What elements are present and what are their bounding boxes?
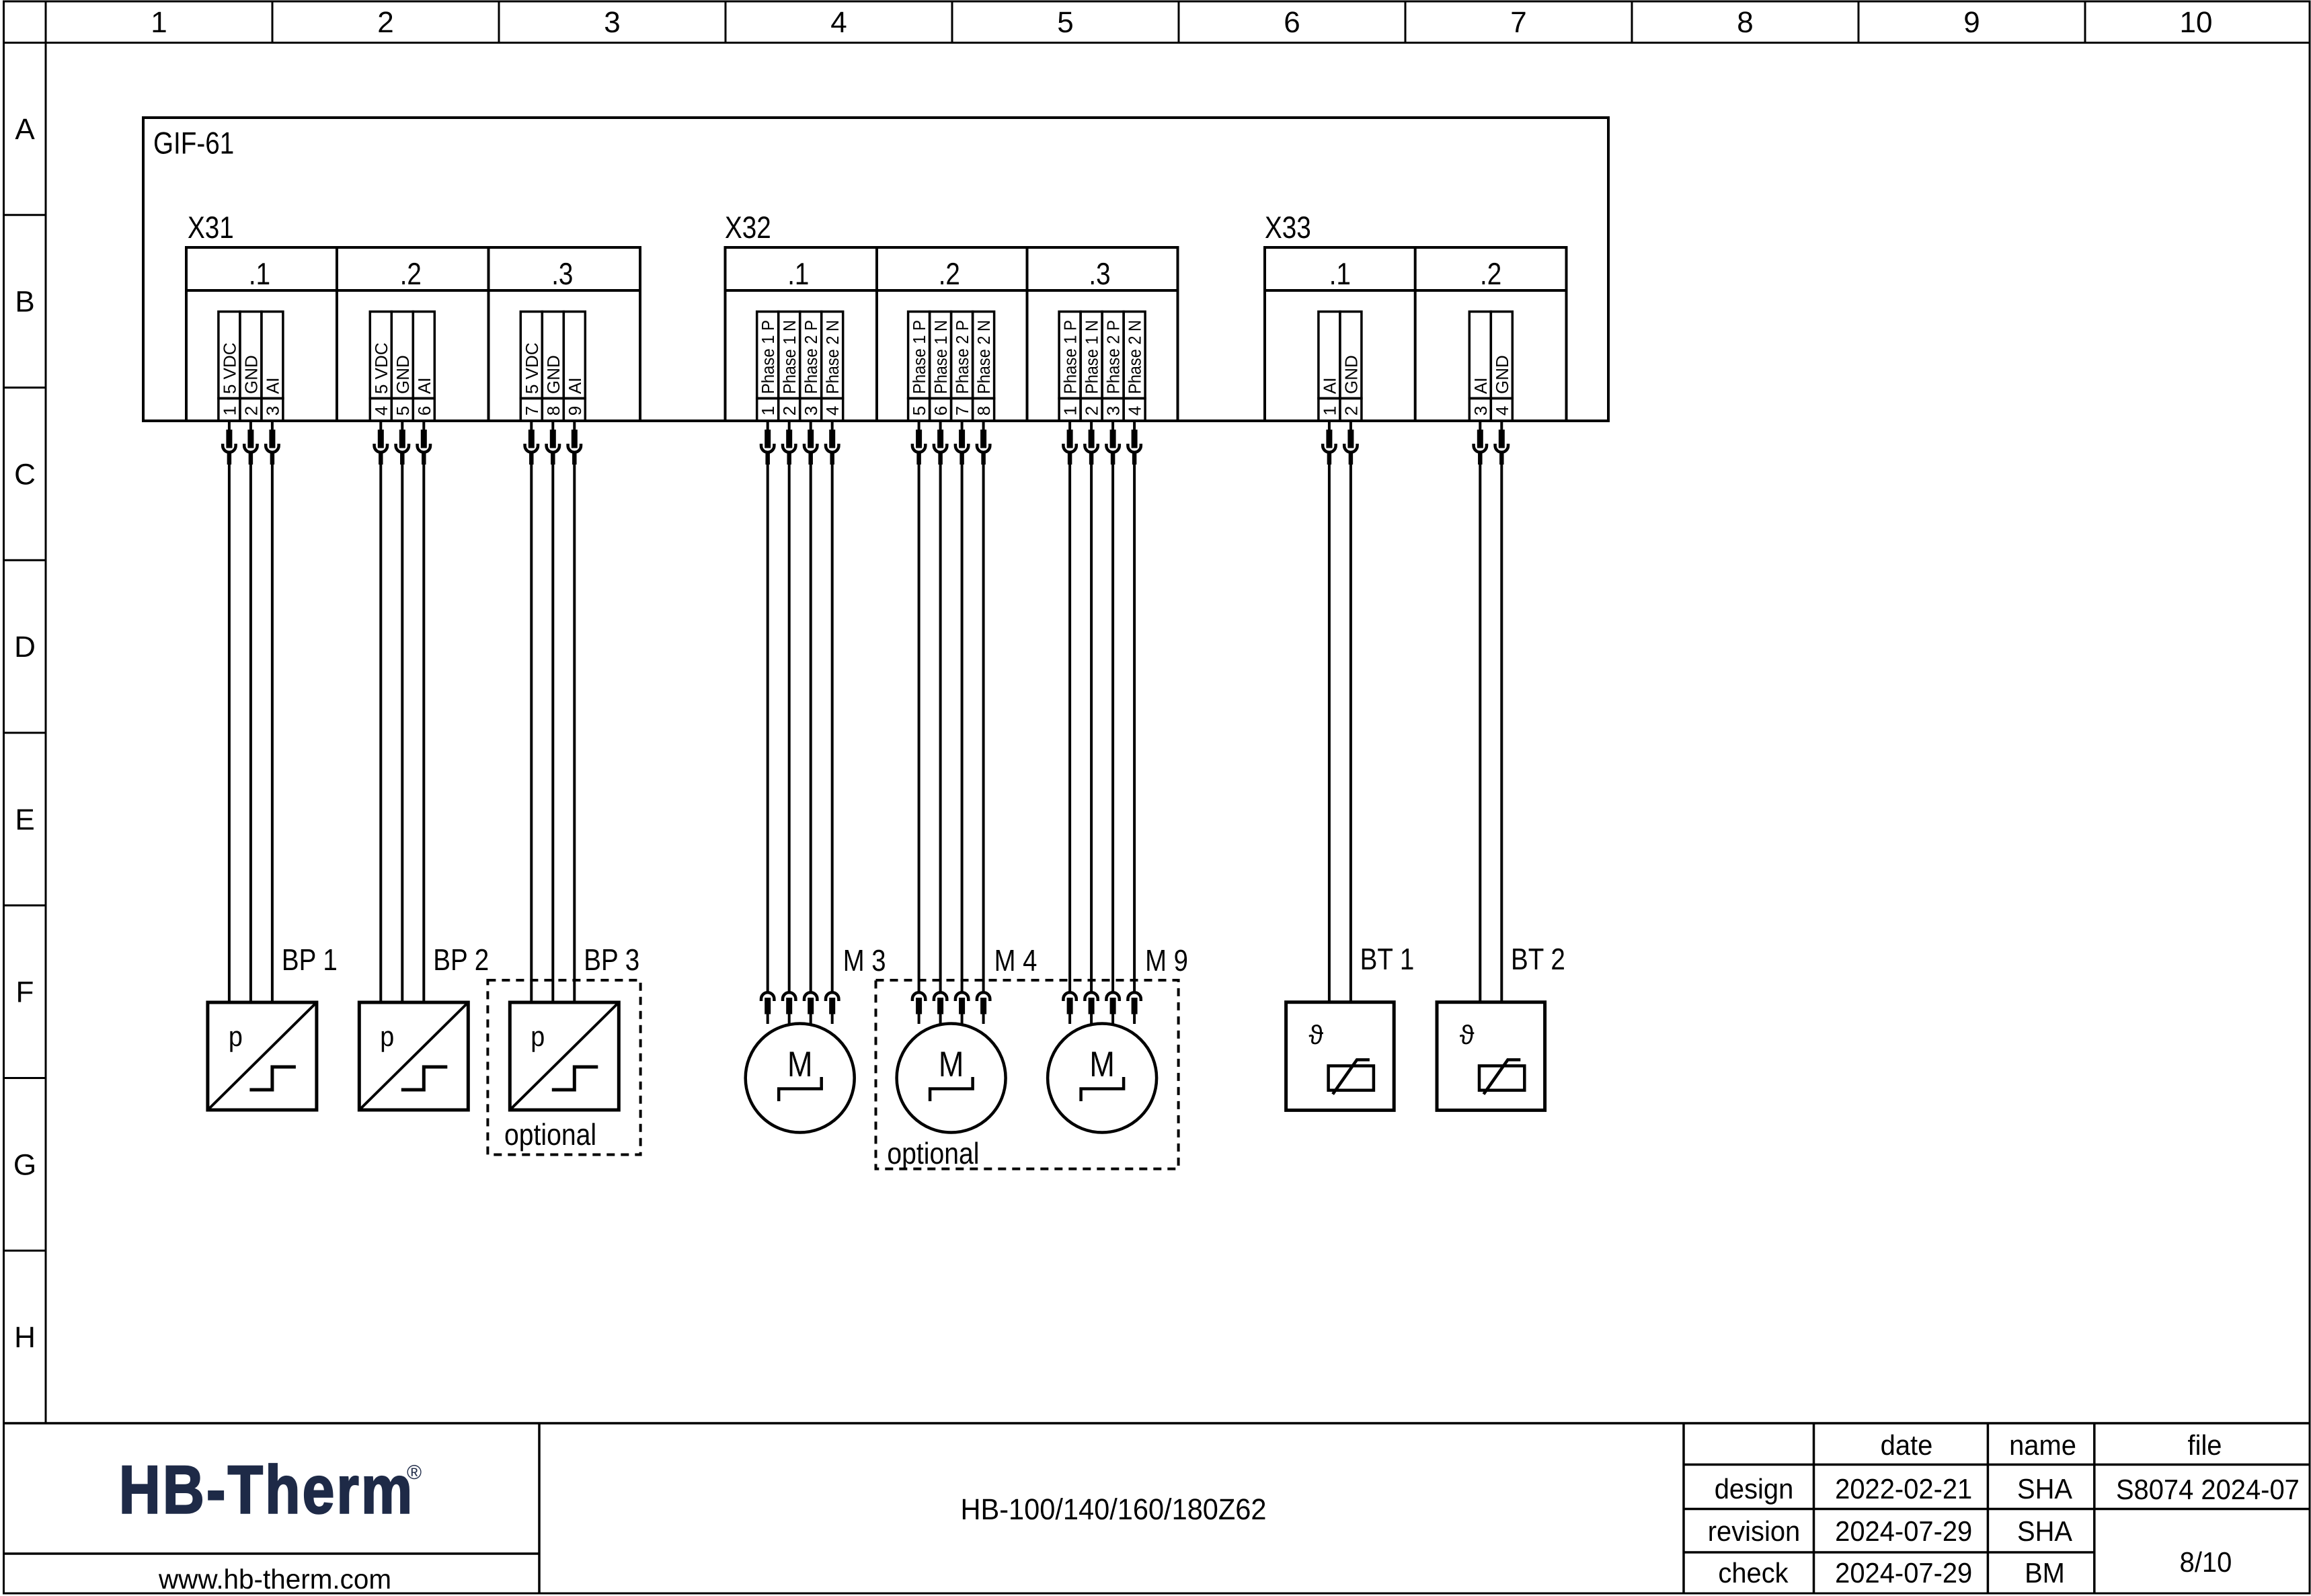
svg-text:p: p [229, 1021, 243, 1052]
svg-text:X31: X31 [188, 210, 234, 245]
svg-text:M 4: M 4 [994, 943, 1037, 977]
svg-text:AI: AI [1319, 377, 1339, 394]
svg-text:4: 4 [371, 406, 391, 415]
svg-text:SHA: SHA [2017, 1515, 2072, 1547]
svg-text:5: 5 [909, 406, 929, 415]
svg-text:Phase 1 P: Phase 1 P [1060, 320, 1081, 394]
svg-text:1: 1 [151, 6, 167, 39]
svg-text:M 9: M 9 [1145, 943, 1188, 977]
svg-text:GND: GND [393, 355, 413, 394]
svg-text:Phase 2 P: Phase 2 P [801, 320, 821, 394]
svg-text:2: 2 [241, 406, 261, 415]
svg-text:date: date [1881, 1429, 1933, 1461]
svg-text:F: F [16, 976, 34, 1009]
svg-text:B: B [15, 286, 34, 319]
svg-text:1: 1 [1060, 406, 1081, 415]
svg-text:Phase 2 N: Phase 2 N [822, 320, 843, 394]
svg-text:M: M [939, 1045, 964, 1084]
svg-text:6: 6 [1284, 6, 1300, 39]
svg-text:7: 7 [1510, 6, 1526, 39]
svg-text:10: 10 [2180, 6, 2213, 39]
svg-text:p: p [531, 1021, 545, 1052]
svg-text:optional: optional [887, 1136, 979, 1170]
svg-text:GND: GND [1341, 355, 1361, 394]
svg-text:BP 3: BP 3 [584, 943, 639, 977]
svg-text:7: 7 [522, 406, 542, 415]
svg-text:.1: .1 [1329, 256, 1351, 291]
svg-text:9: 9 [1963, 6, 1980, 39]
svg-text:AI: AI [565, 377, 585, 394]
svg-text:4: 4 [1492, 406, 1512, 415]
svg-text:p: p [380, 1021, 394, 1052]
svg-text:Phase 1 N: Phase 1 N [931, 320, 951, 394]
svg-text:Phase 2 P: Phase 2 P [952, 320, 972, 394]
svg-text:optional: optional [504, 1117, 596, 1152]
svg-text:AI: AI [414, 377, 434, 394]
svg-text:4: 4 [830, 6, 847, 39]
svg-text:3: 3 [801, 406, 821, 415]
svg-text:Phase 1 P: Phase 1 P [909, 320, 929, 394]
svg-text:2: 2 [1082, 406, 1102, 415]
svg-text:M: M [1089, 1045, 1115, 1084]
svg-text:design: design [1715, 1473, 1794, 1505]
svg-text:.2: .2 [400, 256, 422, 291]
svg-text:BT 2: BT 2 [1511, 942, 1565, 976]
svg-text:ϑ: ϑ [1460, 1021, 1475, 1050]
svg-text:1: 1 [758, 406, 778, 415]
svg-text:X33: X33 [1265, 210, 1311, 245]
svg-text:5 VDC: 5 VDC [522, 342, 542, 394]
svg-text:H: H [14, 1321, 36, 1354]
svg-text:BM: BM [2025, 1557, 2065, 1589]
svg-text:2: 2 [377, 6, 393, 39]
svg-text:5: 5 [1057, 6, 1073, 39]
svg-text:3: 3 [1103, 406, 1124, 415]
svg-text:GND: GND [1492, 355, 1512, 394]
svg-text:name: name [2009, 1429, 2076, 1461]
svg-text:Phase 1 N: Phase 1 N [779, 320, 799, 394]
svg-text:1: 1 [1319, 406, 1339, 415]
svg-text:G: G [13, 1148, 36, 1181]
svg-text:2024-07-29: 2024-07-29 [1835, 1557, 1972, 1589]
svg-text:8: 8 [543, 406, 563, 415]
svg-text:X32: X32 [725, 210, 771, 245]
svg-text:7: 7 [952, 406, 972, 415]
svg-text:AI: AI [262, 377, 282, 394]
svg-text:BP 1: BP 1 [282, 943, 338, 977]
svg-text:2022-02-21: 2022-02-21 [1835, 1473, 1972, 1505]
svg-text:M 3: M 3 [843, 943, 886, 977]
svg-text:ϑ: ϑ [1308, 1021, 1323, 1050]
svg-text:.1: .1 [787, 256, 809, 291]
svg-text:HB-Therm: HB-Therm [119, 1453, 414, 1528]
svg-text:3: 3 [262, 406, 282, 415]
svg-text:GND: GND [543, 355, 563, 394]
svg-text:.3: .3 [1089, 256, 1110, 291]
svg-text:M: M [787, 1045, 813, 1084]
svg-text:8: 8 [1737, 6, 1753, 39]
svg-text:5 VDC: 5 VDC [371, 342, 391, 394]
svg-text:Phase 1 N: Phase 1 N [1082, 320, 1102, 394]
svg-text:.2: .2 [1480, 256, 1501, 291]
svg-text:1: 1 [219, 406, 239, 415]
svg-text:HB-100/140/160/180Z62: HB-100/140/160/180Z62 [961, 1493, 1267, 1526]
svg-text:2024-07-29: 2024-07-29 [1835, 1515, 1972, 1547]
svg-text:C: C [14, 458, 36, 491]
svg-text:3: 3 [1471, 406, 1491, 415]
svg-text:6: 6 [931, 406, 951, 415]
svg-text:D: D [14, 631, 36, 664]
svg-text:4: 4 [822, 406, 843, 415]
svg-text:BP 2: BP 2 [433, 943, 489, 977]
svg-text:.1: .1 [249, 256, 270, 291]
svg-text:Phase 2 N: Phase 2 N [1125, 320, 1145, 394]
svg-text:.2: .2 [939, 256, 960, 291]
svg-text:check: check [1718, 1557, 1789, 1589]
svg-text:GND: GND [241, 355, 261, 394]
svg-text:revision: revision [1708, 1515, 1801, 1547]
svg-text:6: 6 [414, 406, 434, 415]
svg-text:S8074 2024-07: S8074 2024-07 [2116, 1474, 2300, 1505]
svg-text:A: A [15, 113, 35, 146]
svg-text:E: E [15, 803, 34, 836]
svg-text:Phase 2 N: Phase 2 N [974, 320, 994, 394]
svg-text:®: ® [407, 1462, 422, 1484]
svg-text:3: 3 [604, 6, 620, 39]
svg-text:5 VDC: 5 VDC [219, 342, 239, 394]
svg-text:9: 9 [565, 406, 585, 415]
svg-text:www.hb-therm.com: www.hb-therm.com [158, 1564, 391, 1595]
svg-text:.3: .3 [551, 256, 573, 291]
svg-text:file: file [2188, 1429, 2222, 1461]
svg-text:5: 5 [393, 406, 413, 415]
svg-text:4: 4 [1125, 406, 1145, 415]
svg-text:Phase 2 P: Phase 2 P [1103, 320, 1124, 394]
svg-text:2: 2 [779, 406, 799, 415]
svg-text:SHA: SHA [2017, 1473, 2072, 1505]
svg-text:BT 1: BT 1 [1360, 942, 1415, 976]
svg-text:2: 2 [1341, 406, 1361, 415]
svg-text:8/10: 8/10 [2180, 1546, 2232, 1578]
svg-text:GIF-61: GIF-61 [153, 126, 234, 161]
svg-text:8: 8 [974, 406, 994, 415]
svg-text:AI: AI [1471, 377, 1491, 394]
svg-text:Phase 1 P: Phase 1 P [758, 320, 778, 394]
